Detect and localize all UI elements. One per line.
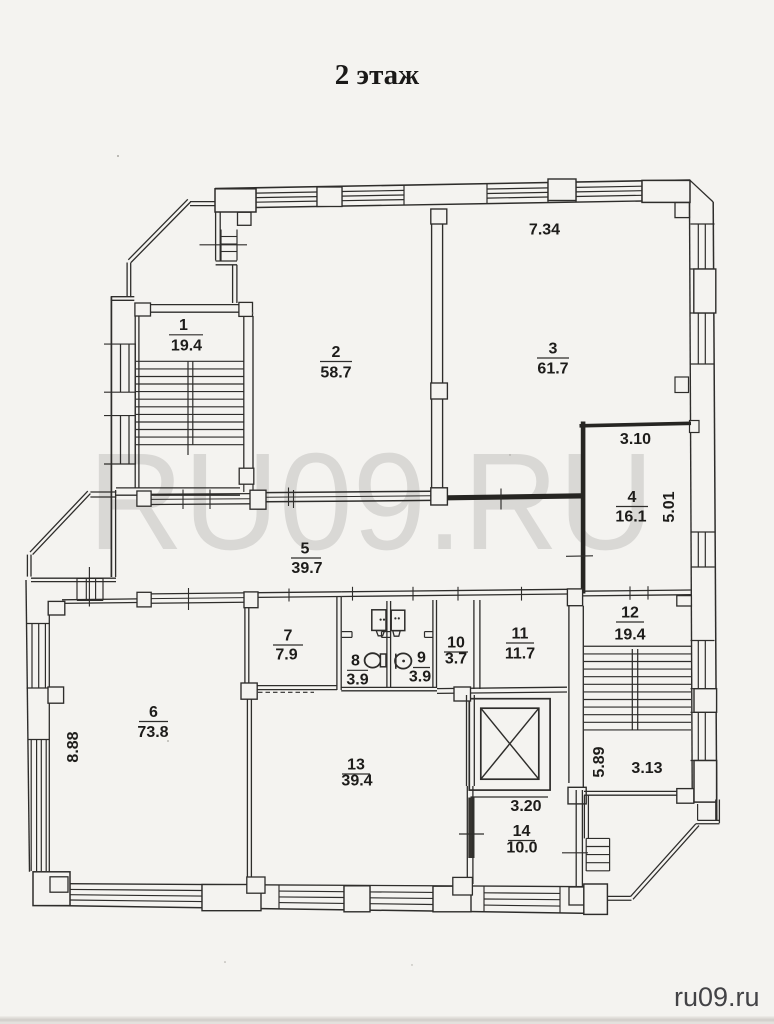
svg-text:ru09.ru: ru09.ru <box>674 982 760 1012</box>
svg-text:3.9: 3.9 <box>409 669 431 686</box>
svg-text:8.88: 8.88 <box>65 731 82 762</box>
svg-text:14: 14 <box>513 823 531 840</box>
svg-text:3: 3 <box>549 341 558 358</box>
svg-text:73.8: 73.8 <box>137 724 168 741</box>
svg-text:39.4: 39.4 <box>341 773 372 790</box>
svg-text:19.4: 19.4 <box>614 627 645 644</box>
svg-text:58.7: 58.7 <box>320 365 351 382</box>
svg-text:7.34: 7.34 <box>529 222 560 239</box>
svg-text:10.0: 10.0 <box>506 840 537 857</box>
svg-text:39.7: 39.7 <box>291 560 322 577</box>
svg-text:12: 12 <box>621 605 639 622</box>
svg-text:11.7: 11.7 <box>505 646 535 663</box>
svg-text:4: 4 <box>628 489 637 506</box>
svg-text:2 этаж: 2 этаж <box>335 59 419 91</box>
svg-text:6: 6 <box>149 704 158 721</box>
svg-text:9: 9 <box>417 650 426 667</box>
svg-text:3.10: 3.10 <box>620 431 651 448</box>
svg-text:2: 2 <box>332 344 341 361</box>
svg-text:3.7: 3.7 <box>445 651 467 668</box>
svg-text:5.01: 5.01 <box>661 491 678 522</box>
svg-text:8: 8 <box>351 653 360 670</box>
svg-text:10: 10 <box>447 635 465 652</box>
svg-text:7.9: 7.9 <box>275 647 297 664</box>
svg-text:3.20: 3.20 <box>510 798 541 815</box>
svg-text:7: 7 <box>284 628 293 645</box>
svg-text:5: 5 <box>301 541 310 558</box>
svg-text:1: 1 <box>179 317 188 334</box>
svg-text:3.13: 3.13 <box>631 760 662 777</box>
svg-text:19.4: 19.4 <box>171 338 202 355</box>
svg-text:11: 11 <box>512 626 529 643</box>
svg-text:5.89: 5.89 <box>591 746 608 777</box>
svg-text:16.1: 16.1 <box>615 509 646 526</box>
svg-text:3.9: 3.9 <box>346 672 368 689</box>
svg-text:13: 13 <box>347 757 365 774</box>
svg-text:61.7: 61.7 <box>537 361 568 378</box>
